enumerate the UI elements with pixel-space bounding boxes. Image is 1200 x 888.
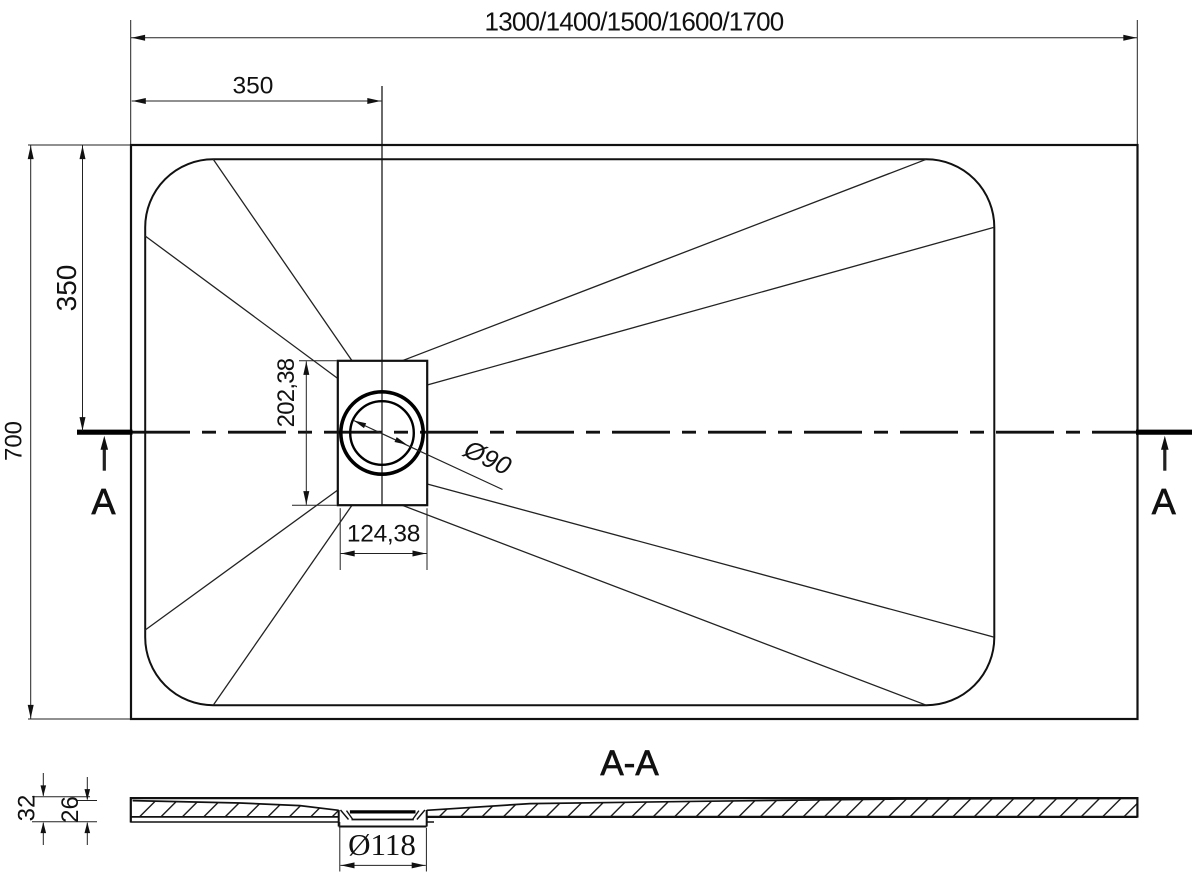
- svg-text:1300/1400/1500/1600/1700: 1300/1400/1500/1600/1700: [485, 7, 784, 37]
- svg-text:Ø118: Ø118: [348, 827, 416, 862]
- svg-text:A: A: [1152, 481, 1176, 522]
- svg-text:32: 32: [14, 795, 41, 822]
- svg-text:A: A: [91, 481, 115, 522]
- svg-text:124,38: 124,38: [347, 521, 420, 548]
- svg-text:350: 350: [51, 265, 82, 312]
- svg-text:26: 26: [57, 796, 84, 823]
- svg-text:350: 350: [233, 73, 274, 100]
- svg-text:A-A: A-A: [600, 744, 659, 783]
- svg-text:700: 700: [1, 421, 28, 461]
- svg-text:202,38: 202,38: [273, 358, 300, 427]
